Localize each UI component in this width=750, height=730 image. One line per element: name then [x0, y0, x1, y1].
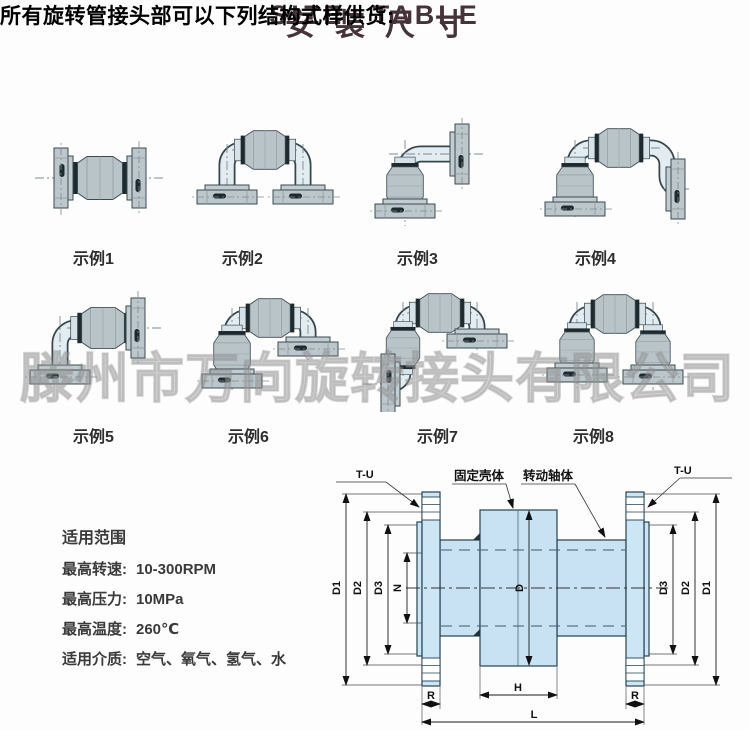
- example-4-label: 示例4: [525, 245, 695, 269]
- fixed-body-label: 固定壳体: [454, 468, 505, 483]
- specs-title: 适用范围: [62, 524, 286, 548]
- gasket-right: [644, 522, 649, 656]
- tu-leader-right: [648, 478, 732, 507]
- example-5-label: 示例5: [15, 423, 185, 447]
- spec-value: 260℃: [136, 621, 179, 638]
- example-3-label: 示例3: [345, 245, 515, 269]
- example-6-label: 示例6: [180, 423, 350, 447]
- dim-l: L: [531, 709, 538, 721]
- rotary-joint-body: [409, 294, 470, 333]
- example-2: 示例2: [180, 118, 350, 269]
- dim-d2-right: D2: [680, 581, 692, 595]
- spec-row: 最高压力:10MPa: [62, 588, 286, 609]
- rotary-joint-body: [239, 299, 300, 338]
- weld-mark: [473, 533, 480, 540]
- dim-d1-right: D1: [701, 581, 713, 595]
- flange: [616, 365, 690, 384]
- flange: [368, 199, 442, 218]
- spec-value: 空气、氧气、氢气、水: [136, 651, 286, 668]
- spec-value: 10MPa: [136, 591, 184, 608]
- rotating-shaft-label: 转动轴体: [523, 468, 574, 483]
- flange: [190, 185, 264, 204]
- flange: [126, 291, 145, 365]
- flange: [195, 369, 269, 388]
- dim-h: H: [514, 682, 522, 694]
- example-3: 示例3: [345, 118, 515, 269]
- example-4-figure: [525, 118, 695, 234]
- dim-d1-left: D1: [331, 581, 343, 595]
- flange: [23, 365, 97, 384]
- flange: [266, 185, 340, 204]
- dim-d3-left: D3: [373, 581, 385, 595]
- dim-r-left: R: [427, 690, 435, 702]
- example-8: 示例8: [525, 288, 695, 447]
- example-1-figure: [15, 118, 185, 234]
- spec-label: 最高温度:: [62, 621, 127, 638]
- spec-row: 最高温度:260℃: [62, 618, 286, 639]
- specs-block: 适用范围 最高转速:10-300RPM 最高压力:10MPa 最高温度:260℃…: [62, 524, 286, 678]
- example-7: 示例7: [345, 288, 515, 447]
- spec-row: 最高转速:10-300RPM: [62, 558, 286, 579]
- example-8-figure: [525, 288, 695, 412]
- tu-label-right: T-U: [674, 465, 692, 477]
- example-2-figure: [180, 118, 350, 234]
- example-6-figure: [180, 288, 350, 412]
- example-5-figure: [15, 288, 185, 412]
- example-3-figure: [345, 118, 515, 234]
- dim-d: D: [514, 584, 526, 592]
- dim-d3-right: D3: [658, 581, 670, 595]
- example-6: 示例6: [180, 288, 350, 447]
- example-4: 示例4: [525, 118, 695, 269]
- flange: [450, 118, 469, 191]
- spec-value: 10-300RPM: [136, 561, 216, 578]
- dimension-drawing: T-U T-U 固定壳体 转动轴体 D1 D2 D3 N D D3 D2 D1 …: [328, 447, 748, 729]
- rotary-joint-body: [584, 295, 645, 334]
- flange: [54, 141, 73, 215]
- intro-text: 所有旋转管接头部可以下列结构式样供货:: [0, 0, 395, 30]
- spec-label: 适用介质:: [62, 651, 127, 668]
- tu-leader-left: [336, 482, 419, 507]
- spec-label: 最高压力:: [62, 591, 127, 608]
- gasket-left: [417, 522, 422, 656]
- rotating-shaft-leader: [575, 484, 605, 537]
- spec-row: 适用介质:空气、氧气、氢气、水: [62, 648, 286, 669]
- example-5: 示例5: [15, 288, 185, 447]
- flange: [540, 363, 614, 382]
- example-2-label: 示例2: [180, 245, 350, 269]
- flange: [271, 337, 345, 356]
- flange-right: [626, 492, 644, 686]
- example-1: 示例1: [15, 118, 185, 269]
- flange: [538, 197, 612, 216]
- spec-label: 最高转速:: [62, 561, 127, 578]
- rotary-joint-body: [66, 157, 134, 200]
- example-8-label: 示例8: [525, 423, 695, 447]
- rotary-joint-body: [588, 129, 649, 168]
- example-7-label: 示例7: [345, 423, 515, 447]
- flange: [127, 141, 146, 215]
- example-7-figure: [345, 288, 515, 412]
- rotary-joint-body: [234, 131, 295, 170]
- dim-d2-left: D2: [352, 581, 364, 595]
- product-size-table-page: 安装尺寸 SIZE TABLE 所有旋转管接头部可以下列结构式样供货: 滕州市万…: [0, 0, 750, 730]
- example-1-label: 示例1: [15, 245, 185, 269]
- dim-n: N: [392, 584, 404, 592]
- flange-left: [422, 492, 440, 686]
- tu-label-left: T-U: [356, 469, 374, 481]
- fixed-body-leader: [506, 484, 513, 508]
- dim-r-right: R: [631, 690, 639, 702]
